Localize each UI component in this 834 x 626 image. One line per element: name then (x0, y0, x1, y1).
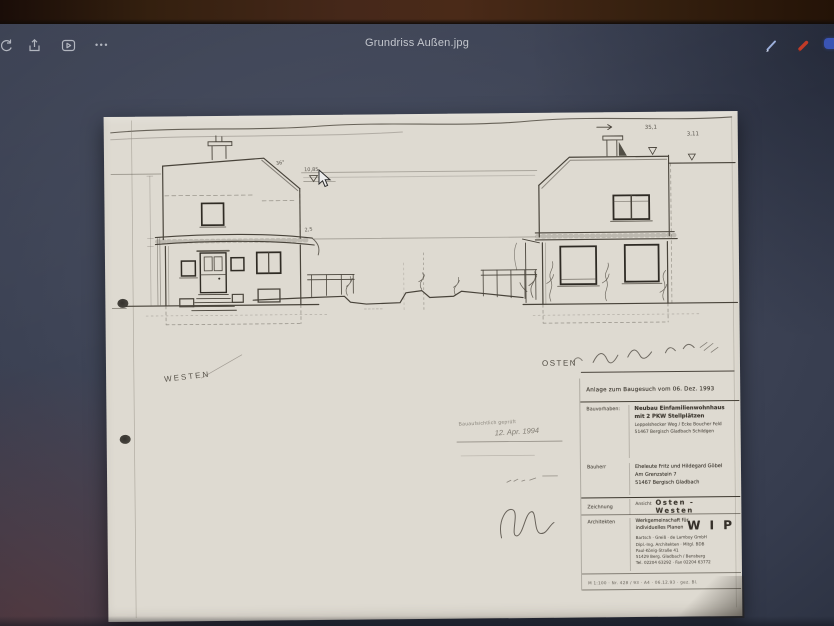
west-elevation (111, 135, 337, 326)
architekten-label: Architekten (587, 518, 630, 571)
bauherr-line1: Eheleute Fritz und Hildegard Göbel (635, 462, 736, 471)
file-title: Grundriss Außen.jpg (0, 37, 834, 49)
punch-hole-top (117, 299, 128, 308)
bauvorhaben-line4: 51467 Bergisch Gladbach Schildgen (635, 429, 736, 437)
titleblock-architekten: Architekten W I P Werkgemeinschaft für i… (581, 514, 741, 575)
mouse-cursor (318, 169, 332, 194)
title-block: Anlage zum Baugesuch vom 06. Dez. 1993 B… (579, 377, 741, 591)
titleblock-bauvorhaben: Bauvorhaben: Neubau Einfamilienwohnhaus … (580, 401, 740, 461)
wip-logo: W I P (687, 518, 734, 532)
bauvorhaben-line2: mit 2 PKW Stellplätzen (634, 412, 735, 421)
bauvorhaben-label: Bauvorhaben: (586, 405, 629, 458)
annotation-eave-left: 2,5 (304, 227, 313, 234)
app-toolbar: ••• Grundriss Außen.jpg (0, 24, 834, 64)
titleblock-bauherr: Bauherr Eheleute Fritz und Hildegard Göb… (581, 459, 740, 499)
blue-marker-icon[interactable] (824, 38, 834, 49)
paper-corner-shadow (672, 576, 744, 619)
pen-tool-icon[interactable] (762, 36, 780, 54)
zeichnung-label: Zeichnung (587, 503, 629, 510)
red-marker-icon[interactable] (794, 36, 812, 54)
zeichnung-prefix: Ansicht (635, 501, 651, 506)
desk-background (0, 0, 834, 24)
titleblock-anlage: Anlage zum Baugesuch vom 06. Dez. 1993 (580, 377, 739, 403)
scanned-drawing[interactable]: WESTEN OSTEN 36° 10,85 2,5 35,1 3,11 Bau… (104, 111, 743, 622)
label-osten: OSTEN (542, 359, 577, 368)
annotation-level-right-1: 35,1 (645, 125, 657, 131)
punch-hole-bottom (120, 435, 131, 444)
east-elevation (513, 123, 737, 323)
zeichnung-value: Osten - Westen (655, 497, 736, 514)
bauherr-line3: 51467 Bergisch Gladbach (635, 478, 736, 487)
annotation-level-left: 10,85 (304, 167, 318, 173)
photo-frame: ••• Grundriss Außen.jpg (0, 0, 834, 626)
bauherr-label: Bauherr (587, 463, 629, 495)
annotation-level-right-2: 3,11 (687, 131, 699, 137)
architekten-address5: Tel. 02204 63292 · Fax 02204 63772 (636, 559, 737, 566)
tablet-screen: ••• Grundriss Außen.jpg (0, 24, 834, 626)
titleblock-zeichnung: Zeichnung Ansicht Osten - Westen (581, 497, 740, 516)
